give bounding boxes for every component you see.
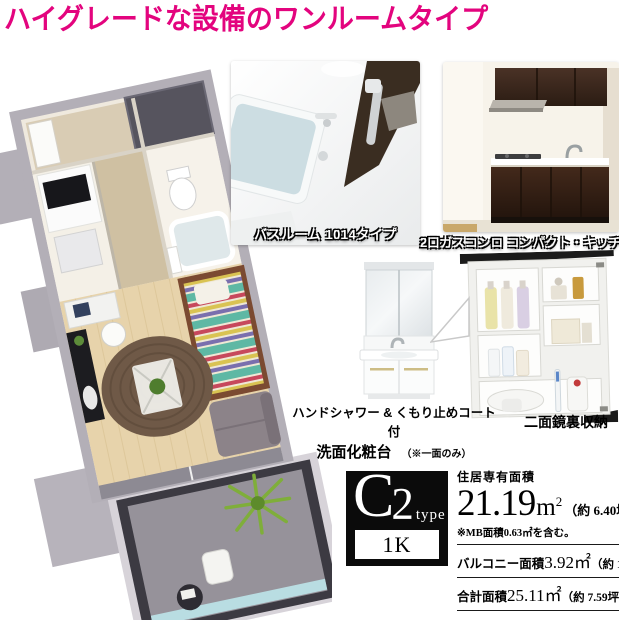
cabinet-photo [460, 250, 618, 426]
hair-dryer-handle [502, 398, 522, 412]
type-letters: C 2 type [353, 465, 447, 527]
gas-cooktop [495, 154, 541, 159]
countertop [491, 158, 609, 165]
range-hood-underside [489, 108, 543, 112]
type-box: C 2 type 1K [346, 471, 448, 566]
toothbrush-head [556, 371, 559, 381]
small-bottle [582, 323, 593, 343]
cosmetic-jar [551, 285, 567, 299]
type-suffix: type [416, 507, 446, 524]
lotion-bottle [516, 350, 529, 375]
layout-badge: 1K [355, 530, 439, 559]
kitchen-side-wall [443, 62, 483, 232]
burner [525, 154, 529, 158]
vanity-caption-line2-row: 洗面化粧台 （※一面のみ） [288, 441, 500, 462]
bathroom-caption: バスルーム 1014タイプ [231, 224, 420, 243]
lotion-bottle [488, 349, 500, 376]
vanity-caption-line2: 洗面化粧台 [316, 441, 391, 462]
perfume-box [552, 319, 581, 344]
spec-divider [457, 577, 619, 578]
area-unit: m2 [536, 494, 562, 522]
bottle-cap [503, 281, 509, 289]
door-handle [404, 368, 428, 371]
vanity-kickboard [368, 394, 430, 399]
vanity-caption: ハンドシャワー & くもり止めコート付 洗面化粧台 （※一面のみ） [288, 402, 500, 462]
bath-drain [318, 151, 328, 161]
counter-shadow [491, 165, 609, 167]
cabinet-caption: 二面鏡裏収納 [506, 412, 619, 432]
brochure-page: ハイグレードな設備のワンルームタイプ [0, 0, 619, 620]
area-note: ※MB面積0.63㎡を含む。 [457, 525, 619, 540]
bottle-cap [519, 280, 525, 288]
callout-arrow [430, 296, 470, 358]
area-big-line: 21.19m2 （約 6.40坪） [457, 485, 619, 524]
total-value: 25.11㎡ [507, 581, 562, 606]
hinge [596, 262, 604, 267]
sink-bowl [381, 352, 417, 359]
area-unit-sup: 2 [556, 494, 563, 509]
lotion-bottle [502, 347, 514, 376]
shower-head [365, 79, 381, 93]
kick-plate [491, 217, 609, 223]
amber-bottle [572, 277, 584, 299]
kitchen-caption: 2口ガスコンロ コンパクト・キッチン [420, 232, 619, 251]
type-letter: C [353, 465, 394, 527]
bathroom-photo-art [231, 61, 420, 245]
hinge [600, 406, 608, 411]
balcony-value: 3.92㎡ [544, 548, 591, 573]
type-number: 2 [391, 482, 414, 527]
kitchen-photo-art [443, 62, 619, 232]
bathroom-photo: バスルーム 1014タイプ [231, 61, 420, 245]
kitchen-wood-floor-edge [443, 224, 477, 232]
spray-bottle [485, 287, 498, 329]
door-handle [370, 368, 394, 371]
area-tsubo: （約 6.40坪） [564, 500, 619, 519]
lower-cabinets [491, 167, 609, 217]
vanity-caption-note: （※一面のみ） [402, 445, 472, 460]
spec-divider [457, 610, 619, 611]
bath-ceiling-light [321, 61, 365, 77]
kitchen-photo [443, 62, 619, 232]
spec-row-balcony: バルコニー面積 3.92㎡ （約 1.18坪） [457, 548, 619, 573]
spec-divider [457, 544, 619, 545]
page-title: ハイグレードな設備のワンルームタイプ [4, 1, 488, 38]
spray-bottle [501, 287, 514, 329]
burner [505, 154, 509, 158]
balcony-label: バルコニー面積 [457, 553, 544, 572]
cabinet-photo-art [460, 250, 618, 426]
area-unit-base: m [536, 494, 555, 521]
spec-row-total: 合計面積 25.11㎡ （約 7.59坪） [457, 581, 619, 606]
bath-faucet [323, 119, 331, 127]
spec-areas: 住居専有面積 21.19m2 （約 6.40坪） ※MB面積0.63㎡を含む。 … [457, 468, 619, 614]
bottle-cap [487, 281, 493, 289]
balcony-tsubo: （約 1.18坪） [591, 556, 619, 572]
total-label: 合計面積 [457, 586, 507, 605]
spray-bottle [517, 286, 530, 328]
compartment [542, 266, 599, 301]
bath-counter-ledge [315, 113, 337, 119]
vanity-caption-line1: ハンドシャワー & くもり止めコート付 [288, 402, 500, 440]
total-tsubo: （約 7.59坪） [562, 589, 619, 605]
callout-triangle [431, 298, 469, 342]
vanity-light-hood [364, 262, 434, 270]
area-value: 21.19 [457, 485, 535, 524]
